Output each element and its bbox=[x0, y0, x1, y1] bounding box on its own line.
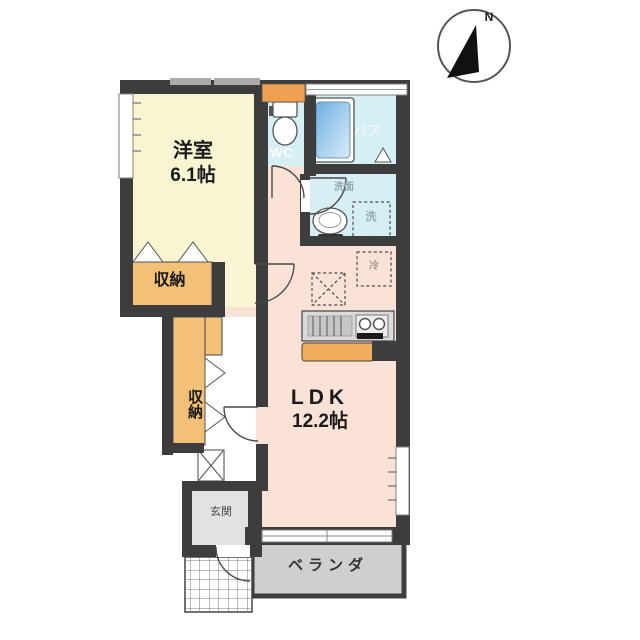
floorplan-drawing bbox=[0, 0, 640, 640]
stove-icon bbox=[356, 315, 388, 339]
corridor-floor bbox=[222, 317, 256, 481]
veranda-floor bbox=[252, 538, 404, 596]
wc-window bbox=[262, 84, 305, 102]
floorplan-page: 洋室 6.1帖 LDK 12.2帖 収納 収納 WC バス 洗面 洗 冷 玄関 … bbox=[0, 0, 640, 640]
shoe-cabinet-icon bbox=[198, 450, 224, 481]
entrance-doorway bbox=[216, 545, 250, 557]
entrance-floor bbox=[192, 491, 248, 545]
kitchen-cabinet bbox=[302, 343, 374, 361]
compass-icon bbox=[438, 10, 510, 82]
eave-bar-left bbox=[170, 78, 211, 85]
bath-window bbox=[306, 84, 407, 95]
storage-lower-floor bbox=[173, 317, 225, 445]
washroom-doorway bbox=[301, 180, 310, 212]
veranda-sliding-door bbox=[262, 530, 392, 542]
bathtub-icon bbox=[312, 98, 354, 162]
porch-grid bbox=[185, 557, 252, 612]
eave-bar-right bbox=[214, 78, 260, 85]
